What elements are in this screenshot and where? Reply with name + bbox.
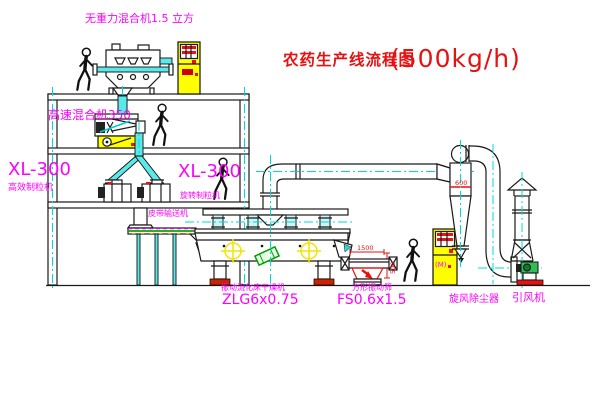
label-cabinet-marking: (M) xyxy=(435,262,447,269)
dim-screen-height: 500 xyxy=(390,262,397,274)
worker-figure-mid xyxy=(153,104,167,145)
label-high-speed-mixer: 高速混合机350 xyxy=(48,109,131,121)
label-left-granulator-name: 高效制粒机 xyxy=(8,184,53,193)
label-mid-granulator-model: XL-300 xyxy=(178,163,241,181)
worker-figure-top xyxy=(77,48,92,90)
label-mid-granulator-name: 旋转制粒机 xyxy=(180,192,220,200)
dim-screen-length: 1500 xyxy=(357,245,374,252)
control-cabinet-bottom xyxy=(433,229,457,285)
label-screen-name: 方形振动筛 xyxy=(352,284,392,292)
label-gravity-mixer: 无重力混合机1.5 立方 xyxy=(85,13,194,24)
control-cabinet-top xyxy=(178,42,200,94)
label-belt-conveyor: 皮带输送机 xyxy=(148,210,188,218)
worker-figure-ground xyxy=(404,239,419,281)
y-splitter-duct xyxy=(105,156,164,183)
dim-cyclone-outlet: 600 xyxy=(455,180,467,187)
label-fan-name: 引风机 xyxy=(512,292,545,303)
label-dryer-name: 振动流化床干燥机 xyxy=(221,284,285,292)
label-screen-model: FS0.6x1.5 xyxy=(337,293,407,307)
label-dryer-model: ZLG6x0.75 xyxy=(222,293,299,307)
cad-process-flow-diagram: 无重力混合机1.5 立方 农药生产线流程图 (500kg/h) 高速混合机350… xyxy=(0,0,600,403)
label-cyclone-name: 旋风除尘器 xyxy=(449,295,499,305)
label-left-granulator-model: XL-300 xyxy=(8,161,71,179)
induced-draft-fan xyxy=(516,262,543,285)
page-title-capacity: (500kg/h) xyxy=(390,46,521,71)
rotary-granulators xyxy=(98,180,170,202)
